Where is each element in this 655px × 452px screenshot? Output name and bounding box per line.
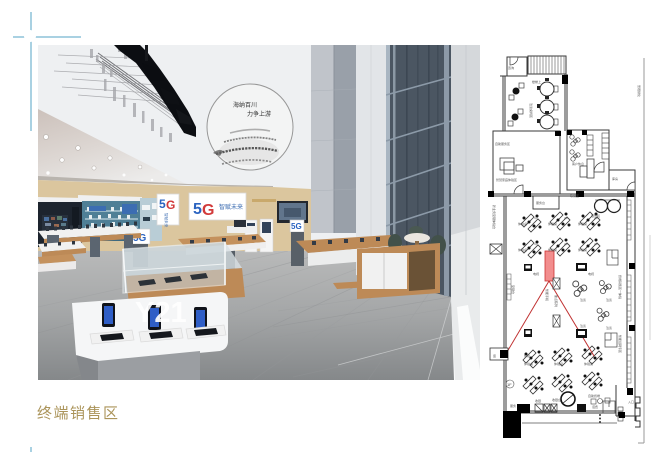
- svg-text:体验桌: 体验桌: [548, 247, 557, 252]
- svg-text:海纳百川: 海纳百川: [233, 101, 257, 109]
- svg-text:体验桌: 体验桌: [578, 247, 587, 252]
- svg-text:4人: 4人: [594, 216, 599, 220]
- svg-text:5G: 5G: [291, 222, 302, 231]
- svg-text:G: G: [166, 198, 175, 212]
- svg-text:库房: 库房: [612, 176, 618, 181]
- svg-text:电视: 电视: [533, 271, 539, 276]
- svg-text:竖: 竖: [493, 353, 496, 358]
- svg-text:智能组网专区: 智能组网专区: [618, 335, 623, 353]
- svg-text:体验桌: 体验桌: [518, 247, 527, 252]
- svg-text:话费: 话费: [592, 404, 598, 409]
- svg-text:咨询: 咨询: [508, 65, 514, 70]
- svg-text:体验桌: 体验桌: [584, 361, 593, 366]
- svg-text:新业务受理体验台: 新业务受理体验台: [492, 205, 497, 229]
- svg-text:4人: 4人: [594, 242, 599, 246]
- svg-text:力争上游: 力争上游: [247, 110, 271, 118]
- svg-text:体验桌: 体验桌: [578, 221, 587, 226]
- svg-text:1F: 1F: [507, 382, 512, 387]
- svg-text:G: G: [202, 202, 214, 219]
- svg-text:洽谈: 洽谈: [580, 297, 586, 302]
- svg-text:体验桌: 体验桌: [524, 361, 533, 366]
- svg-text:5: 5: [193, 201, 202, 218]
- svg-text:终端销售区一体验: 终端销售区一体验: [618, 275, 623, 299]
- svg-text:景观绿化: 景观绿化: [637, 85, 642, 97]
- svg-text:自助服务区: 自助服务区: [495, 141, 510, 146]
- svg-text:智能手机: 智能手机: [545, 289, 550, 301]
- svg-text:入口: 入口: [628, 400, 634, 404]
- svg-text:受理台: 受理台: [511, 285, 516, 294]
- svg-text:电视: 电视: [588, 271, 594, 276]
- svg-text:智赋未来: 智赋未来: [219, 203, 243, 211]
- svg-text:收银台: 收银台: [552, 397, 561, 402]
- svg-text:服务台: 服务台: [536, 200, 545, 205]
- svg-text:洽谈: 洽谈: [606, 297, 612, 302]
- svg-text:洽谈: 洽谈: [580, 323, 586, 328]
- svg-text:4人: 4人: [534, 216, 539, 220]
- svg-text:4人: 4人: [564, 216, 569, 220]
- svg-text:体验桌: 体验桌: [518, 221, 527, 226]
- svg-text:服务: 服务: [510, 403, 516, 408]
- svg-text:洽谈: 洽谈: [606, 325, 612, 330]
- svg-text:重点陈列: 重点陈列: [554, 295, 559, 307]
- svg-text:智慧家庭体验区: 智慧家庭体验区: [496, 177, 517, 182]
- svg-text:等候区: 等候区: [570, 193, 579, 198]
- svg-text:Y21: Y21: [135, 297, 187, 329]
- svg-text:收银: 收银: [535, 398, 541, 403]
- svg-text:客户休息: 客户休息: [572, 161, 584, 166]
- svg-text:4人: 4人: [534, 242, 539, 246]
- svg-text:楼梯上: 楼梯上: [532, 79, 541, 84]
- svg-text:4人: 4人: [564, 242, 569, 246]
- svg-text:5: 5: [159, 197, 166, 211]
- svg-text:体验桌: 体验桌: [548, 221, 557, 226]
- svg-text:体验桌: 体验桌: [554, 361, 563, 366]
- svg-text:自助终端: 自助终端: [588, 393, 600, 398]
- svg-text:洽谈桌椅区: 洽谈桌椅区: [529, 103, 534, 118]
- svg-text:智赋未来: 智赋未来: [164, 213, 169, 228]
- svg-text:体验: 体验: [524, 353, 530, 358]
